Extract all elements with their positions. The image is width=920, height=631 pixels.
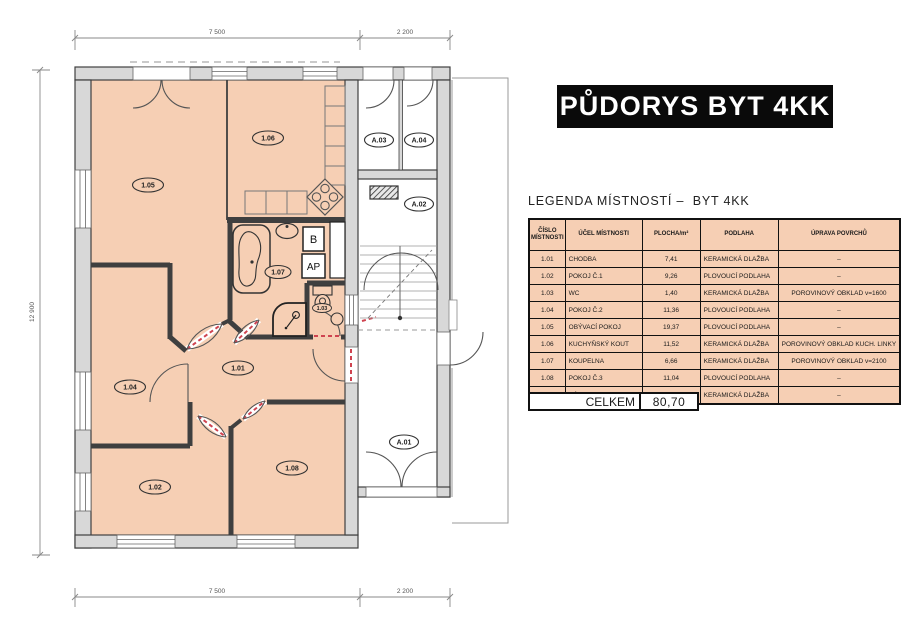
room-label-text: A.04	[412, 138, 427, 145]
wc-sink-icon	[331, 313, 343, 325]
room-label-text: 1.06	[261, 136, 275, 143]
table-cell: 1.07	[529, 353, 565, 370]
room-label-1-08: 1.08	[277, 461, 308, 475]
dim-left: 12 900	[29, 302, 36, 322]
dim-top-wing: 2 200	[397, 29, 414, 36]
room-label-text: 1.05	[141, 183, 155, 190]
table-row: 1.01 CHODBA 7,41 KERAMICKÁ DLAŽBA –	[529, 251, 900, 268]
room-label-text: A.02	[412, 202, 427, 209]
room-label-text: A.01	[397, 440, 412, 447]
table-cell: 1.03	[529, 285, 565, 302]
column-header: PLOCHA/m²	[642, 219, 700, 251]
boiler-label: B	[310, 234, 317, 246]
table-cell: PLOVOUCÍ PODLAHA	[700, 268, 778, 285]
washer-label: AP	[307, 262, 321, 273]
total-label: CELKEM	[528, 392, 640, 411]
drawing-title-text: PŮDORYS BYT 4KK	[560, 91, 831, 122]
dim-bottom-wing: 2 200	[397, 588, 414, 595]
table-cell: KERAMICKÁ DLAŽBA	[700, 387, 778, 405]
room-label-text: 1.07	[271, 270, 285, 277]
room-label-1-06: 1.06	[253, 131, 284, 145]
table-cell: 1,40	[642, 285, 700, 302]
table-row: 1.07 KOUPELNA 6,66 KERAMICKÁ DLAŽBA PORO…	[529, 353, 900, 370]
table-cell: –	[778, 251, 900, 268]
table-row: 1.05 OBÝVACÍ POKOJ 19,37 PLOVOUCÍ PODLAH…	[529, 319, 900, 336]
room-label-text: 1.04	[123, 385, 137, 392]
column-header: ČÍSLO MÍSTNOSTI	[529, 219, 565, 251]
table-cell: 1.01	[529, 251, 565, 268]
room-label-1-02: 1.02	[140, 480, 171, 494]
table-row: 1.06 KUCHYŇSKÝ KOUT 11,52 KERAMICKÁ DLAŽ…	[529, 336, 900, 353]
room-label-text: 1.02	[148, 485, 162, 492]
washer-box: AP	[302, 254, 325, 278]
dim-bottom-main: 7 500	[209, 588, 226, 595]
table-cell: 1.05	[529, 319, 565, 336]
table-cell: 6,66	[642, 353, 700, 370]
table-cell: 1.04	[529, 302, 565, 319]
table-cell: KOUPELNA	[565, 353, 642, 370]
table-cell: 19,37	[642, 319, 700, 336]
table-cell: 1.06	[529, 336, 565, 353]
floor-plan: 7 500 2 200 7 500 2 200 12 900	[0, 0, 520, 626]
table-cell: –	[778, 302, 900, 319]
table-cell: KERAMICKÁ DLAŽBA	[700, 251, 778, 268]
table-cell: PLOVOUCÍ PODLAHA	[700, 319, 778, 336]
table-cell: 9,26	[642, 268, 700, 285]
column-header: PODLAHA	[700, 219, 778, 251]
drawing-title: PŮDORYS BYT 4KK	[557, 85, 833, 128]
table-cell: 1.08	[529, 370, 565, 387]
vent-grate	[370, 186, 398, 199]
table-cell: CHODBA	[565, 251, 642, 268]
table-cell: –	[778, 370, 900, 387]
room-label-1-03: 1.03	[313, 304, 332, 313]
shaft	[330, 222, 345, 278]
dim-top-main: 7 500	[209, 29, 226, 36]
table-cell: –	[778, 319, 900, 336]
legend-heading: LEGENDA MÍSTNOSTÍ – BYT 4KK	[528, 194, 750, 208]
table-cell: PLOVOUCÍ PODLAHA	[700, 302, 778, 319]
table-row: 1.04 POKOJ Č.2 11,36 PLOVOUCÍ PODLAHA –	[529, 302, 900, 319]
header-row: ČÍSLO MÍSTNOSTI ÚČEL MÍSTNOSTI PLOCHA/m²…	[529, 219, 900, 251]
table-cell: KERAMICKÁ DLAŽBA	[700, 336, 778, 353]
table-cell: 11,52	[642, 336, 700, 353]
table-cell: KERAMICKÁ DLAŽBA	[700, 353, 778, 370]
table-cell: POROVINOVÝ OBKLAD v=1600	[778, 285, 900, 302]
table-row: 1.02 POKOJ Č.1 9,26 PLOVOUCÍ PODLAHA –	[529, 268, 900, 285]
room-label-1-01: 1.01	[223, 361, 254, 375]
table-cell: –	[778, 387, 900, 405]
table-row: 1.03 WC 1,40 KERAMICKÁ DLAŽBA POROVINOVÝ…	[529, 285, 900, 302]
table-cell: KERAMICKÁ DLAŽBA	[700, 285, 778, 302]
room-label-text: 1.03	[317, 306, 328, 312]
bathtub-icon	[233, 225, 270, 293]
room-label-1-07: 1.07	[265, 266, 291, 279]
table-cell: KUCHYŇSKÝ KOUT	[565, 336, 642, 353]
table-cell: 11,36	[642, 302, 700, 319]
room-label-text: 1.01	[231, 366, 245, 373]
table-cell: 11,04	[642, 370, 700, 387]
room-label-text: 1.08	[285, 466, 299, 473]
room-label-a-04: A.04	[405, 133, 434, 147]
common-area-floor	[358, 80, 437, 535]
room-label-1-05: 1.05	[133, 178, 164, 192]
table-cell: PLOVOUCÍ PODLAHA	[700, 370, 778, 387]
room-label-a-03: A.03	[365, 133, 394, 147]
totals-row: CELKEM 80,70	[528, 392, 699, 411]
table-cell: 7,41	[642, 251, 700, 268]
table-cell: OBÝVACÍ POKOJ	[565, 319, 642, 336]
table-cell: POKOJ Č.3	[565, 370, 642, 387]
table-cell: –	[778, 268, 900, 285]
column-header: ÚPRAVA POVRCHŮ	[778, 219, 900, 251]
room-label-text: A.03	[372, 138, 387, 145]
table-row: 1.08 POKOJ Č.3 11,04 PLOVOUCÍ PODLAHA –	[529, 370, 900, 387]
table-cell: 1.02	[529, 268, 565, 285]
table-cell: POKOJ Č.1	[565, 268, 642, 285]
boiler-box: B	[303, 227, 324, 251]
total-value: 80,70	[640, 392, 699, 411]
table-cell: WC	[565, 285, 642, 302]
shower-icon	[273, 303, 306, 336]
table-cell: POROVINOVÝ OBKLAD v=2100	[778, 353, 900, 370]
neighbour-outline	[449, 78, 508, 523]
legend-table: ČÍSLO MÍSTNOSTI ÚČEL MÍSTNOSTI PLOCHA/m²…	[528, 218, 901, 405]
room-label-a-02: A.02	[405, 197, 434, 211]
column-header: ÚČEL MÍSTNOSTI	[565, 219, 642, 251]
table-cell: POKOJ Č.2	[565, 302, 642, 319]
room-label-a-01: A.01	[390, 435, 419, 449]
washbasin-icon	[276, 224, 298, 239]
table-cell: POROVINOVÝ OBKLAD KUCH. LINKY	[778, 336, 900, 353]
room-label-1-04: 1.04	[115, 380, 146, 394]
